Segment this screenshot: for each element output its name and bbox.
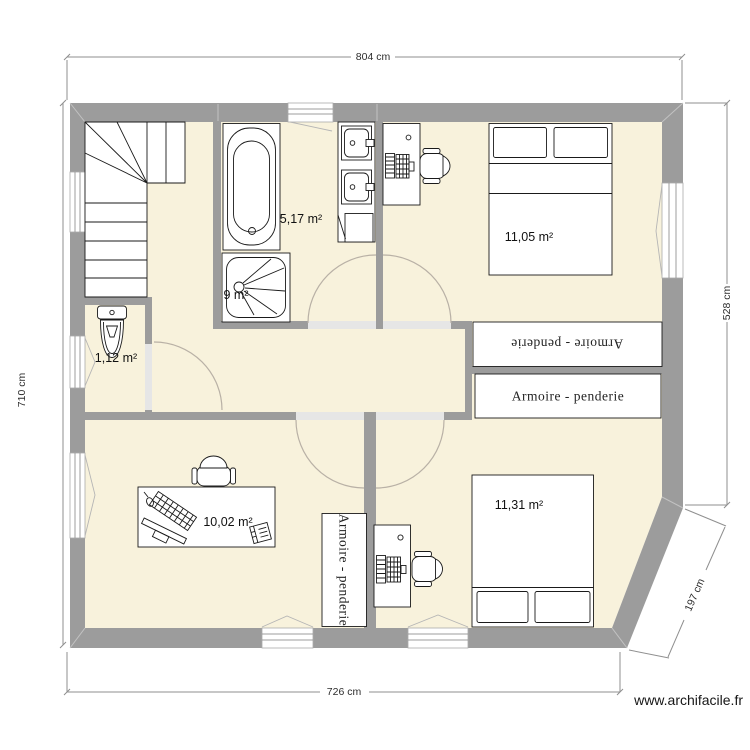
dimension-right: 528 cm <box>685 100 733 508</box>
desk-bedroom-bottom-icon[interactable] <box>374 525 411 607</box>
dimension-bottom-label: 726 cm <box>327 686 362 698</box>
dimension-left: 710 cm <box>16 100 66 648</box>
wardrobe-office[interactable]: Armoire - penderie <box>322 514 367 627</box>
interior-wall-corridor-right[interactable] <box>465 321 472 412</box>
room-label-hall: 9 m² <box>224 288 249 302</box>
threshold-bathroom <box>308 321 376 329</box>
interior-wall-bathroom-left[interactable] <box>213 122 221 329</box>
wardrobe-office-label: Armoire - penderie <box>337 514 352 626</box>
bathtub-icon[interactable] <box>223 124 280 251</box>
double-bed-top-icon[interactable] <box>489 124 612 276</box>
interior-wall-stairs-wc[interactable] <box>85 297 152 305</box>
wardrobe-bedroom-top[interactable]: Armoire - penderie <box>473 322 662 367</box>
threshold-office <box>296 412 364 420</box>
floor-plan-canvas: Armoire - penderie Armoire - penderie Ar… <box>0 0 750 750</box>
dimension-bottom: 726 cm <box>64 652 623 698</box>
wardrobe-bedroom-bottom[interactable]: Armoire - penderie <box>475 374 661 418</box>
room-label-bedroom-top: 11,05 m² <box>505 230 553 244</box>
room-label-bedroom-bottom: 11,31 m² <box>495 498 543 512</box>
interior-wall-bedroom-divider[interactable] <box>472 366 662 374</box>
interior-wall-bathroom-right[interactable] <box>376 122 383 321</box>
dimension-top-label: 804 cm <box>356 51 391 63</box>
dimension-left-label: 710 cm <box>16 373 28 408</box>
room-label-office: 10,02 m² <box>203 515 252 529</box>
threshold-wc <box>145 344 152 410</box>
wardrobe-bottom-label: Armoire - penderie <box>512 389 624 404</box>
room-label-wc: 1,12 m² <box>95 351 137 365</box>
room-label-bathroom: 5,17 m² <box>280 212 322 226</box>
dimension-bevel-label: 197 cm <box>683 577 708 614</box>
dimension-right-label: 528 cm <box>721 286 733 321</box>
threshold-bedroom-bottom <box>376 412 444 420</box>
dimension-top: 804 cm <box>64 51 685 100</box>
watermark-archifacile: www.archifacile.fr <box>633 692 743 708</box>
desk-bedroom-top-icon[interactable] <box>383 124 420 206</box>
wardrobe-top-label: Armoire - penderie <box>511 337 623 352</box>
threshold-bedroom-top <box>383 321 451 329</box>
